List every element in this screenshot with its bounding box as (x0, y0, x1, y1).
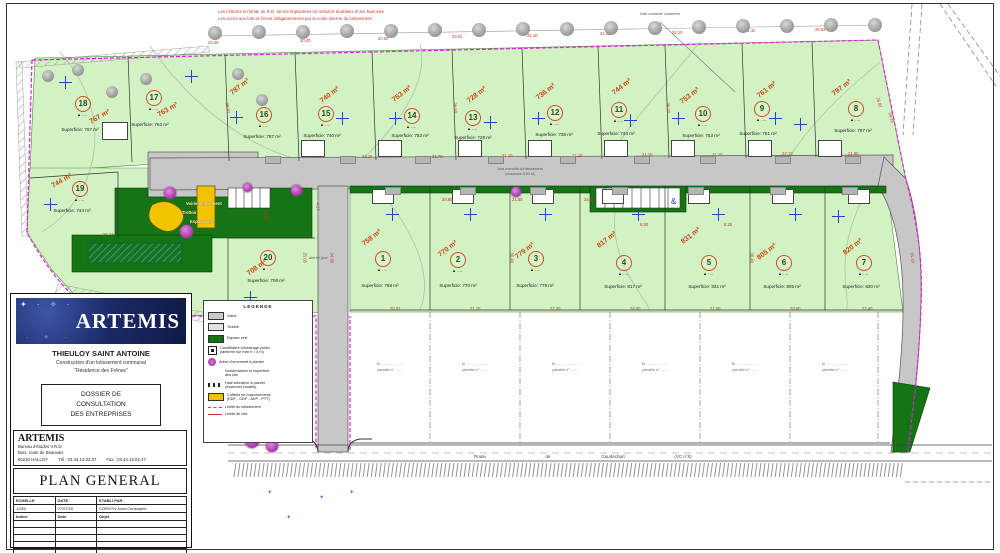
lot-superficie-label: Superficie: 770 m² (439, 283, 476, 288)
legend-item-label: Espace vert (227, 336, 247, 340)
benchmark-icon: ▲ ‥‥ (549, 121, 559, 126)
building-pad (671, 140, 695, 157)
legend-swatch-icon (208, 393, 224, 401)
existing-tree-icon (296, 25, 310, 39)
lot-superficie-label: Superficie: 787 m² (243, 134, 280, 139)
project-title: THIEULOY SAINT ANTOINE (11, 349, 191, 358)
legend-item: Trottoir (208, 323, 308, 331)
legend-item: Limite du lotissement (208, 405, 308, 409)
parcel-number-label: parcelle n° …… (822, 368, 847, 372)
dimension-label: 38.50 (453, 102, 459, 113)
parcel-owner-label: M. ……………… (552, 362, 579, 366)
dimension-label: 24.00 (630, 306, 640, 311)
author-value: CORSYN Jean-Christophe (97, 505, 187, 513)
ornamental-tree-icon (511, 187, 521, 197)
legend-swatch-icon (208, 312, 224, 320)
driveway (415, 156, 431, 164)
survey-cross-icon: + (320, 495, 324, 501)
firm-fax: Fax : 03.44.13.02.47 (106, 457, 145, 462)
dimension-label: 24.35 (330, 253, 335, 263)
legend-item: Espace vert (208, 335, 308, 343)
lot-number-8: 8 (848, 101, 864, 117)
ornamental-tree-icon (291, 185, 302, 196)
author-header: ETABLI PAR : (97, 497, 187, 505)
driveway (488, 156, 504, 164)
firm-name: ARTEMIS (18, 433, 182, 444)
parcel-number-label: parcelle n° …… (552, 368, 577, 372)
existing-tree-icon (252, 25, 266, 39)
lot-superficie-label: Superficie: 763 m² (131, 122, 168, 127)
scale-value: 1/250 (14, 505, 56, 513)
lot-superficie-label: Superficie: 736 m² (535, 132, 572, 137)
legend-swatch-icon (208, 323, 224, 331)
tree-planting-marker-icon (464, 208, 477, 221)
lot-area-label: 831 m² (680, 226, 702, 245)
lot-area-label: 817 m² (596, 230, 618, 249)
dimension-label: 23.40 (862, 306, 872, 311)
lot-area-label: 744 m² (611, 77, 633, 96)
lot-area-label: 820 m² (842, 237, 864, 256)
road-name-route: Route (474, 454, 486, 459)
dossier-box: DOSSIER DE CONSULTATION DES ENTREPRISES (41, 384, 161, 426)
dossier-line: DOSSIER DE (81, 390, 121, 400)
driveway (845, 156, 861, 164)
benchmark-icon: ▲ ‥‥ (850, 117, 860, 122)
tree-planting-marker-icon (532, 112, 545, 125)
legend-item: Candélabre d'éclairage public(lanterne s… (208, 346, 308, 355)
lot-superficie-label: Superficie: 761 m² (739, 131, 776, 136)
driveway (265, 156, 281, 164)
legend-item-label: Arbre d'ornement à planter (219, 360, 264, 364)
lot-superficie-label: Superficie: 740 m² (303, 133, 340, 138)
benchmark-icon: ▲ ‥‥ (320, 122, 330, 127)
subdate-header: Date (55, 513, 97, 521)
legend-item: Coffrets de branchements(EDF - GDF - AEP… (208, 393, 308, 402)
existing-tree-icon (340, 24, 354, 38)
driveway (385, 187, 401, 195)
lot-superficie-label: Superficie: 805 m² (763, 284, 800, 289)
benchmark-icon: ▲ ‥‥ (148, 106, 158, 111)
driveway (530, 187, 546, 195)
tree-planting-marker-icon (59, 76, 72, 89)
existing-tree-icon (472, 23, 486, 37)
lot-area-label: 744 m² (51, 172, 74, 189)
lot-number-10: 10 (695, 106, 711, 122)
dimension-label: 36.40 (750, 253, 755, 263)
parcel-owner-label: M. ……………… (822, 362, 849, 366)
existing-tree-icon (868, 18, 882, 32)
lot-number-19: 19 (72, 181, 88, 197)
survey-cross-icon: + (268, 490, 272, 496)
benchmark-icon: ▲ ‥‥ (618, 271, 628, 276)
building-pad (818, 140, 842, 157)
existing-tree-icon (604, 21, 618, 35)
benchmark-icon: ▲ ‥‥ (77, 112, 87, 117)
lot-area-label: 736 m² (535, 82, 557, 101)
benchmark-icon: ▲ ‥‥ (452, 268, 462, 273)
firm-tel: Tél : 03.44.13.02.37 (58, 457, 96, 462)
lot-superficie-label: Superficie: 744 m² (53, 208, 90, 213)
lot-superficie-label: Superficie: 708 m² (247, 278, 284, 283)
existing-tree-icon (140, 73, 152, 85)
lot-number-12: 12 (547, 105, 563, 121)
ornamental-tree-icon (243, 183, 252, 192)
lot-number-14: 14 (404, 108, 420, 124)
title-block: ✦ · ✧ · · ✧ · ARTEMIS THIEULOY SAINT ANT… (10, 293, 192, 548)
top-note-line1: Les clôtures en limite du R.D. seront im… (218, 9, 384, 14)
lot-number-16: 16 (256, 107, 272, 123)
lot-number-18: 18 (75, 96, 91, 112)
dimension-label: 20.02 (390, 306, 400, 311)
building-pad (378, 140, 402, 157)
logo-stars-icon: ✦ · ✧ · (20, 300, 73, 309)
driveway (612, 187, 628, 195)
tree-planting-marker-icon (185, 70, 198, 83)
dimension-label: 20.01 (452, 34, 462, 39)
legend-item: Numérotation et superficiedes lots (208, 369, 308, 378)
dimension-label: 21.10 (527, 33, 537, 38)
benchmark-icon: ▲ ‥‥ (377, 267, 387, 272)
tree-planting-marker-icon (336, 112, 349, 125)
dimension-label: 20.80 (442, 197, 452, 202)
existing-tree-icon (648, 21, 662, 35)
road-width-label: (chaussée 5.50 m) (505, 172, 535, 176)
dimension-label: 21.80 (512, 197, 522, 202)
objet-header: Objet (97, 513, 187, 521)
parcel-number-label: parcelle n° …… (642, 368, 667, 372)
artemis-logo: ✦ · ✧ · · ✧ · ARTEMIS (16, 298, 186, 344)
existing-tree-icon (428, 23, 442, 37)
parcel-owner-label: M. ……………… (732, 362, 759, 366)
lot-number-9: 9 (754, 101, 770, 117)
title-table: ECHELLE DATE : ETABLI PAR : 1/250 07/07/… (13, 496, 187, 553)
legend-item: Arbre d'ornement à planter (208, 358, 308, 366)
legend-title: LEGENDE (208, 304, 308, 309)
legend-mline-icon (208, 407, 222, 408)
existing-tree-icon (780, 19, 794, 33)
parcel-owner-label: M. ……………… (462, 362, 489, 366)
legend-item-label: Coffrets de branchements(EDF - GDF - AEP… (227, 393, 271, 402)
dimension-label: 22.30 (550, 306, 560, 311)
lot-superficie-label: Superficie: 820 m² (842, 284, 879, 289)
date-value: 07/07/20 (55, 505, 97, 513)
legend-item-label: Limite du lotissement (225, 405, 261, 409)
benchmark-icon: ▲ ‥‥ (530, 267, 540, 272)
firm-city: 60210 HALLOY (18, 457, 48, 462)
road-name-gaudechart: Gaudechart (601, 454, 625, 459)
legend-swatch-icon (208, 335, 224, 343)
benchmark-icon: ▲ ‥‥ (778, 271, 788, 276)
building-pad (528, 140, 552, 157)
lot-number-7: 7 (856, 255, 872, 271)
firm-address: Bois, route de Beauvais (18, 450, 182, 456)
firm-box: ARTEMIS Bureau d'études V.R.D. Bois, rou… (13, 430, 187, 466)
driveway (634, 156, 650, 164)
lot-superficie-label: Superficie: 753 m² (682, 133, 719, 138)
driveway (770, 187, 786, 195)
legend-ticks-icon (208, 383, 222, 387)
dimension-label: 8.20 (724, 222, 732, 227)
date-header: DATE : (55, 497, 97, 505)
existing-tree-icon (72, 64, 84, 76)
lot-area-label: 797 m² (831, 78, 853, 97)
ornamental-tree-icon (164, 187, 176, 199)
existing-tree-icon (208, 26, 222, 40)
driveway (688, 187, 704, 195)
legend-lamp-icon (208, 346, 217, 355)
tree-planting-marker-icon (386, 208, 399, 221)
benchmark-icon: ▲ ‥‥ (858, 271, 868, 276)
driveway (775, 156, 791, 164)
benchmark-icon: ▲ ‥‥ (756, 117, 766, 122)
existing-tree-icon (824, 18, 838, 32)
legend-item-label: Numérotation et superficiedes lots (225, 369, 269, 378)
tree-planting-marker-icon (632, 208, 645, 221)
entrance-area-label: Voirie lotissement (186, 201, 222, 206)
ornamental-tree-icon (180, 225, 193, 238)
lot-superficie-label: Superficie: 831 m² (688, 284, 725, 289)
lot-number-4: 4 (616, 255, 632, 271)
benchmark-icon: ▲ ‥‥ (697, 122, 707, 127)
dimension-label: 20.80 (790, 306, 800, 311)
driveway (700, 156, 716, 164)
dimension-label: 25.87 (876, 97, 884, 108)
lot-area-label: 740 m² (319, 85, 341, 104)
lot-superficie-label: Superficie: 779 m² (516, 283, 553, 288)
benchmark-icon: ▲ ‥‥ (74, 197, 84, 202)
entrance-area-label: Espace vert (190, 219, 214, 224)
lot-number-6: 6 (776, 255, 792, 271)
benchmark-icon: ▲ ‥‥ (613, 118, 623, 123)
existing-tree-icon (106, 86, 118, 98)
existing-tree-icon (692, 20, 706, 34)
driveway (340, 156, 356, 164)
road-name-label: Voie nouvelle du lotissement (497, 167, 543, 171)
parcel-number-label: parcelle n° …… (732, 368, 757, 372)
lot-superficie-label: Superficie: 817 m² (604, 284, 641, 289)
lot-number-3: 3 (528, 251, 544, 267)
building-pad (102, 122, 128, 140)
legend-item-label: Haie arbustive à planter(essences locale… (225, 381, 265, 390)
lot-area-label: 787 m² (229, 77, 251, 96)
benchmark-icon: ▲ ‥‥ (258, 123, 268, 128)
top-note-line2: Les accès aux lots se feront obligatoire… (218, 16, 372, 21)
survey-cross-icon: + (287, 515, 291, 521)
legend-tree-icon (208, 358, 216, 366)
lot-area-label: 753 m² (391, 84, 413, 103)
legend-item-label: Trottoir (227, 325, 239, 329)
parcel-owner-label: M. ……………… (642, 362, 669, 366)
benchmark-icon: ▲ ‥‥ (262, 266, 272, 271)
legend-item-label: Voirie (227, 314, 237, 318)
dimension-label: 21.10 (672, 30, 682, 35)
lot-area-label: 753 m² (679, 86, 701, 105)
building-pad (458, 140, 482, 157)
road-name-de: de (545, 454, 550, 459)
project-name: "Résidence des Frênes" (11, 368, 191, 374)
tree-planting-marker-icon (389, 112, 402, 125)
dimension-label: 38.10 (225, 102, 232, 113)
hedge-callout: Haie existante conservée (640, 12, 680, 16)
driveway (560, 156, 576, 164)
tree-planting-marker-icon (44, 198, 57, 211)
dimension-label: 21.70 (432, 154, 442, 159)
tree-planting-marker-icon (484, 116, 497, 129)
benchmark-icon: ▲ ‥‥ (703, 271, 713, 276)
scale-header: ECHELLE (14, 497, 56, 505)
dimension-label: 31.10 (910, 252, 916, 263)
lot-area-label: 805 m² (756, 242, 778, 261)
lot-area-label: 763 m² (157, 101, 180, 118)
survey-cross-icon: + (350, 490, 354, 496)
lot-superficie-label: Superficie: 753 m² (391, 133, 428, 138)
tree-planting-marker-icon (539, 208, 552, 221)
existing-tree-icon (42, 70, 54, 82)
road-name-(vc n°6): (VC n°6) (674, 454, 691, 459)
indice-header: Indice (14, 513, 56, 521)
legend-text-icon (208, 370, 222, 376)
lot-number-1: 1 (375, 251, 391, 267)
lot-superficie-label: Superficie: 797 m² (834, 128, 871, 133)
dimension-label: 24.28 (208, 40, 218, 45)
tree-planting-marker-icon (832, 210, 845, 223)
benchmark-icon: ▲ ‥‥ (406, 124, 416, 129)
parcel-number-label: parcelle n° …… (377, 368, 402, 372)
existing-tree-icon (560, 22, 574, 36)
building-pad (748, 140, 772, 157)
benchmark-icon: ▲ ‥‥ (467, 126, 477, 131)
logo-stars-icon: · ✧ · (26, 334, 73, 341)
dimension-label: 22.10 (362, 154, 372, 159)
lot-number-17: 17 (146, 90, 162, 106)
dimension-label: 21.15 (470, 306, 480, 311)
lot-superficie-label: Superficie: 758 m² (361, 283, 398, 288)
lot-area-label: 728 m² (466, 85, 488, 104)
legend-item-label: Limite de lots (225, 412, 247, 416)
dimension-label: 21.50 (710, 306, 720, 311)
tree-planting-marker-icon (712, 208, 725, 221)
dimension-label: 39.20 (666, 102, 672, 113)
dimension-label: 26.12 (103, 232, 113, 237)
lot-area-label: 758 m² (361, 228, 383, 247)
legend-box: LEGENDE VoirieTrottoirEspace vertCandéla… (203, 300, 313, 443)
driveway (842, 187, 858, 195)
driveway (460, 187, 476, 195)
lot-number-2: 2 (450, 252, 466, 268)
existing-tree-icon (232, 68, 244, 80)
lot-superficie-label: Superficie: 767 m² (61, 127, 98, 132)
legend-list: VoirieTrottoirEspace vertCandélabre d'éc… (208, 312, 308, 417)
legend-item: Limite de lots (208, 412, 308, 416)
tree-planting-marker-icon (789, 208, 802, 221)
logo-text: ARTEMIS (76, 309, 180, 334)
dimension-label: 36.40 (510, 253, 515, 263)
parcel-number-label: parcelle n° …… (462, 368, 487, 372)
tree-planting-marker-icon (672, 112, 685, 125)
existing-tree-icon (256, 94, 268, 106)
lot-number-15: 15 (318, 106, 334, 122)
parcel-owner-label: M. ……………… (377, 362, 404, 366)
project-subtitle: Construction d'un lotissement communal (11, 360, 191, 366)
entrance-area-label: Trottoir (182, 210, 197, 215)
lot-superficie-label: Superficie: 744 m² (597, 131, 634, 136)
dossier-line: CONSULTATION (76, 400, 125, 410)
tree-planting-marker-icon (624, 114, 637, 127)
tree-planting-marker-icon (230, 111, 243, 124)
dimension-label: 4.17 (316, 203, 321, 211)
lot-area-label: 761 m² (756, 80, 778, 99)
building-pad (604, 140, 628, 157)
legend-rline-icon (208, 414, 222, 415)
dimension-label: 6.50 (640, 222, 648, 227)
dimension-label: 28.00 (264, 211, 269, 221)
drawing-title: PLAN GENERAL (13, 468, 187, 494)
dimension-label: 29.18 (888, 112, 896, 123)
lot-number-13: 13 (465, 110, 481, 126)
legend-item: Voirie (208, 312, 308, 320)
tree-planting-marker-icon (769, 112, 782, 125)
building-pad (301, 140, 325, 157)
dossier-line: DES ENTREPRISES (70, 410, 131, 420)
legend-item-label: Candélabre d'éclairage public(lanterne s… (220, 346, 270, 355)
site-plan-sheet: & (0, 0, 1000, 553)
dimension-label: 24.20 (584, 197, 594, 202)
playground-label: aire de jeux (309, 256, 328, 260)
dimension-label: 25.05 (303, 253, 308, 263)
tree-planting-marker-icon (794, 118, 807, 131)
lot-number-5: 5 (701, 255, 717, 271)
existing-tree-icon (384, 24, 398, 38)
legend-item: Haie arbustive à planter(essences locale… (208, 381, 308, 390)
